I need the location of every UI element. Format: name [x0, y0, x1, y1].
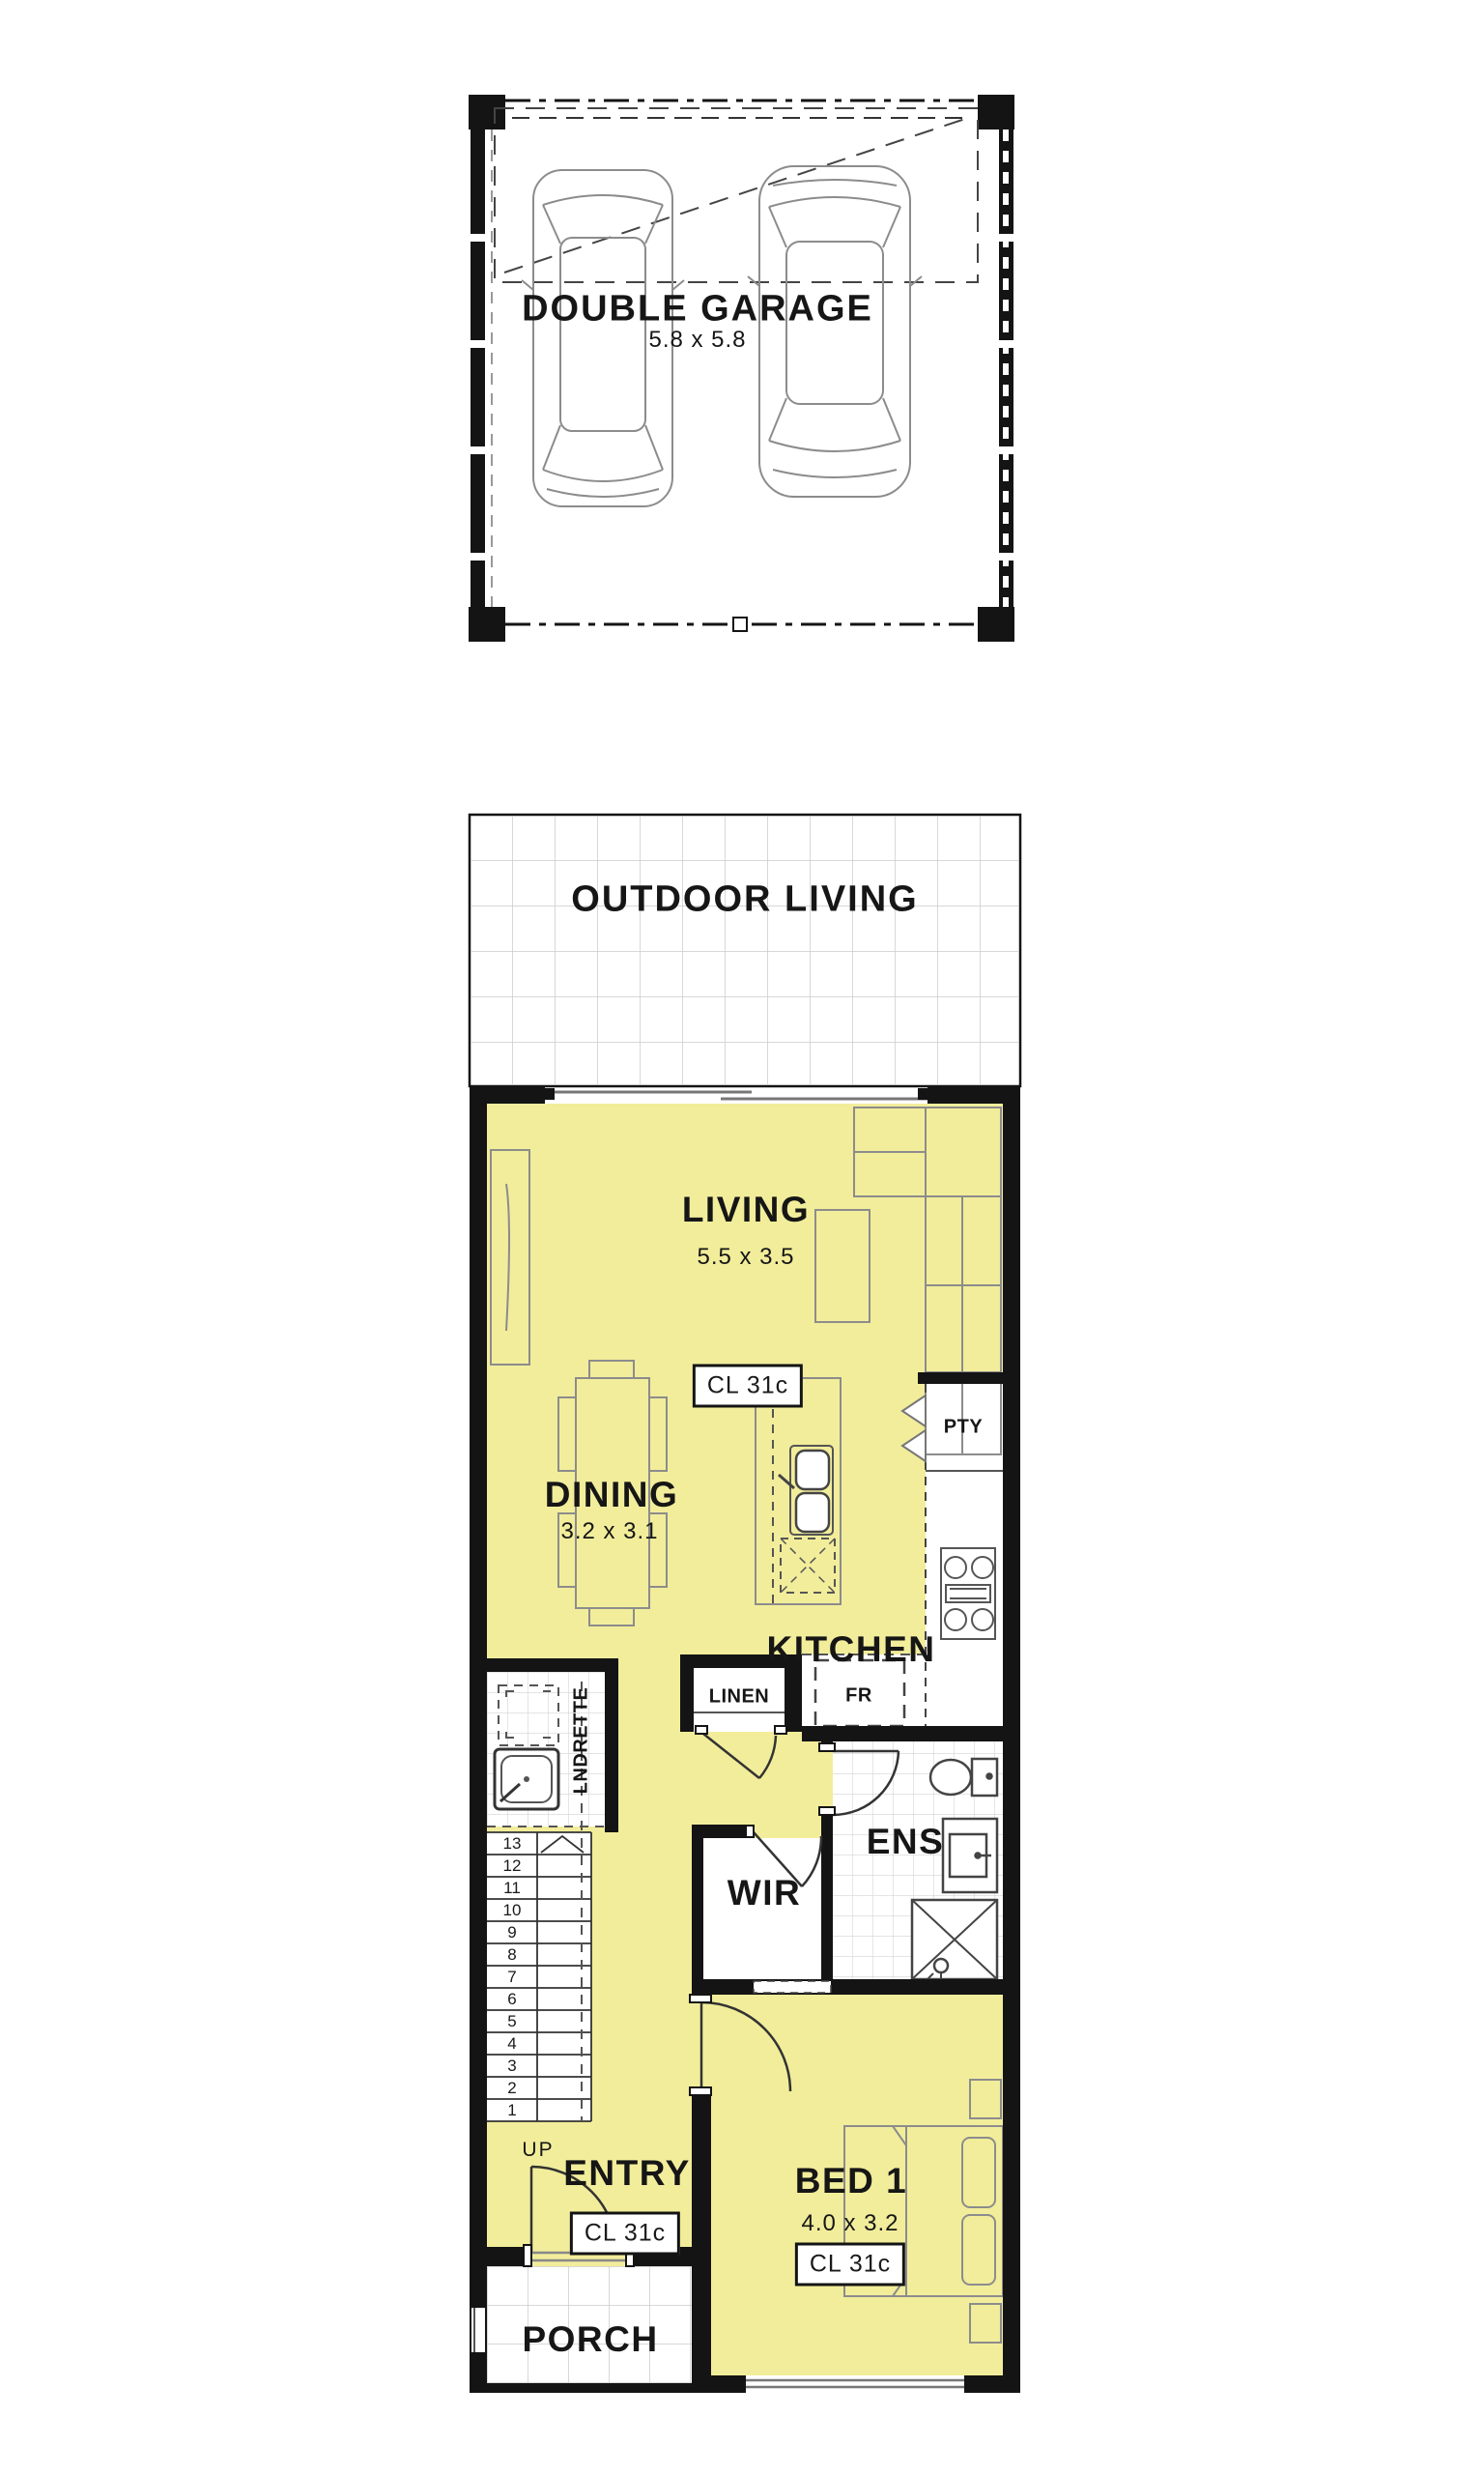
car-icon: [748, 166, 922, 497]
stair-number: 13: [488, 1834, 536, 1854]
living-label: LIVING: [682, 1190, 810, 1230]
stair-number: 5: [488, 2012, 536, 2031]
house-block: [470, 1086, 1020, 2393]
stair-number: 1: [488, 2101, 536, 2120]
stair-number: 11: [488, 1879, 536, 1898]
stair-number: 12: [488, 1856, 536, 1876]
stair-number: 2: [488, 2079, 536, 2098]
laundrette-label: LNDRETTE: [571, 1687, 593, 1795]
bed1-ceiling-tag: CL 31c: [795, 2243, 905, 2287]
porch-label: PORCH: [522, 2319, 658, 2360]
entry-ceiling-tag: CL 31c: [570, 2212, 680, 2256]
robe-opening: [754, 1981, 831, 1993]
floorplan-drawing: [0, 0, 1484, 2474]
garage-dimensions: 5.8 x 5.8: [648, 327, 746, 354]
garage-label: DOUBLE GARAGE: [522, 289, 873, 331]
stair-number: 9: [488, 1923, 536, 1942]
pantry-label: PTY: [944, 1417, 983, 1439]
shower-icon: [912, 1900, 997, 1981]
bedroom-window: [746, 2375, 964, 2393]
outdoor-living-area: [470, 815, 1020, 1086]
sliding-door: [545, 1088, 927, 1100]
fridge-label: FR: [845, 1685, 872, 1708]
stair-number: 4: [488, 2034, 536, 2054]
bed1-dimensions: 4.0 x 3.2: [801, 2210, 899, 2237]
stair-number: 6: [488, 1990, 536, 2009]
vanity-icon: [943, 1819, 997, 1892]
floorplan-page: DOUBLE GARAGE 5.8 x 5.8 OUTDOOR LIVING L…: [0, 0, 1484, 2474]
garage-block: [469, 95, 1014, 642]
outdoor-living-label: OUTDOOR LIVING: [571, 879, 918, 921]
stair-number: 3: [488, 2057, 536, 2076]
linen-label: LINEN: [709, 1686, 770, 1709]
stair-number: 7: [488, 1968, 536, 1987]
toilet-icon: [930, 1759, 997, 1796]
dining-label: DINING: [545, 1475, 679, 1515]
ensuite-label: ENS: [867, 1822, 945, 1862]
entry-label: ENTRY: [563, 2153, 691, 2194]
wir-label: WIR: [728, 1873, 801, 1913]
stair-number: 8: [488, 1945, 536, 1965]
living-ceiling-tag: CL 31c: [693, 1365, 803, 1408]
dining-dimensions: 3.2 x 3.1: [560, 1518, 658, 1545]
living-dimensions: 5.5 x 3.5: [697, 1244, 794, 1271]
stair-number: 10: [488, 1901, 536, 1920]
bed1-label: BED 1: [795, 2161, 907, 2201]
kitchen-label: KITCHEN: [767, 1629, 936, 1670]
up-label: UP: [522, 2139, 554, 2162]
